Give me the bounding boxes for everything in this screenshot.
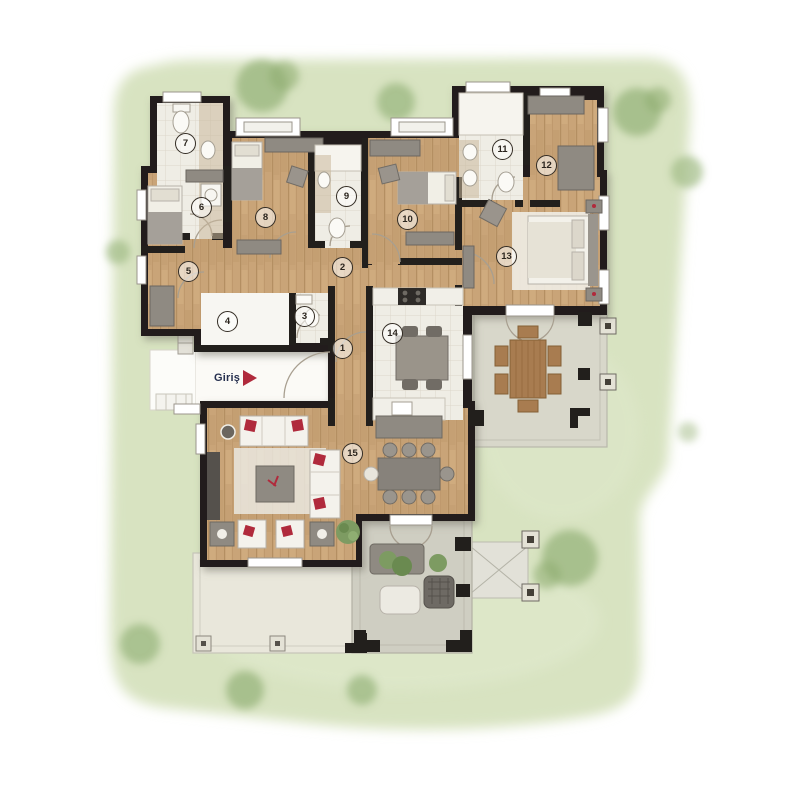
room-badge-3: 3 (294, 306, 315, 327)
room-badge-6: 6 (191, 197, 212, 218)
french-door (390, 515, 432, 525)
chair (421, 490, 435, 504)
window (137, 190, 146, 220)
wardrobe (186, 170, 223, 182)
window (196, 424, 205, 454)
terrace-post (578, 312, 592, 326)
wardrobe (265, 138, 323, 152)
terrace-post (578, 368, 590, 380)
room-badge-7: 7 (175, 133, 196, 154)
sink (463, 170, 477, 186)
chair (548, 374, 561, 394)
room-badge-4: 4 (217, 311, 238, 332)
chair (518, 326, 538, 338)
room-badge-14: 14 (382, 323, 403, 344)
wardrobe (558, 146, 594, 190)
kitchen-table (396, 336, 448, 380)
pillow (244, 419, 257, 432)
chair (402, 490, 416, 504)
window (248, 558, 302, 567)
sink (296, 295, 312, 304)
wardrobe (528, 96, 584, 114)
chair (383, 490, 397, 504)
side-table (221, 425, 235, 439)
sink (463, 144, 477, 160)
wicker-chair (424, 576, 454, 608)
entrance-arrow-icon (243, 370, 257, 386)
chair (383, 443, 397, 457)
chair (402, 379, 418, 390)
patio-bottom-left (193, 553, 363, 653)
chair (518, 400, 538, 412)
pillow (291, 419, 304, 432)
chair (421, 443, 435, 457)
window-sill (174, 404, 200, 414)
toilet (498, 172, 514, 192)
headboard (588, 214, 598, 286)
french-door (506, 305, 554, 316)
room-5-furniture (150, 286, 174, 326)
pergola-post (455, 537, 471, 551)
floor-plan-drawing (0, 0, 800, 800)
room-badge-13: 13 (496, 246, 517, 267)
shower (459, 93, 523, 135)
room-4-floor (201, 293, 289, 345)
chair (402, 443, 416, 457)
dining-table (378, 458, 440, 490)
room-badge-10: 10 (397, 209, 418, 230)
pergola-post (456, 584, 470, 597)
window (463, 335, 472, 379)
tv-unit (207, 452, 220, 520)
wardrobe (370, 140, 420, 156)
chair (495, 374, 508, 394)
pillow (313, 497, 326, 510)
ottoman (380, 586, 420, 614)
room-badge-5: 5 (178, 261, 199, 282)
wardrobe (150, 286, 174, 326)
room-badge-2: 2 (332, 257, 353, 278)
dresser (463, 246, 474, 288)
chair (426, 326, 442, 337)
window (163, 92, 201, 102)
dresser (406, 232, 454, 245)
terrace-post (468, 410, 484, 426)
room-badge-1: 1 (332, 338, 353, 359)
room-badge-12: 12 (536, 155, 557, 176)
chair (426, 379, 442, 390)
toilet (329, 218, 345, 238)
room-badge-8: 8 (255, 207, 276, 228)
sink (201, 141, 215, 159)
chair (364, 467, 378, 481)
chair (548, 346, 561, 366)
entrance-label: Giriş (214, 372, 240, 384)
room-badge-11: 11 (492, 139, 513, 160)
chair (440, 467, 454, 481)
dresser (237, 240, 281, 254)
plant (429, 554, 447, 572)
entrance-label-group: Giriş (214, 370, 257, 386)
floor-plan-page: 1 2 3 4 5 6 7 8 9 10 11 12 13 14 15 Giri… (0, 0, 800, 800)
chair (402, 326, 418, 337)
chair (495, 346, 508, 366)
sideboard (376, 416, 442, 438)
plant (336, 520, 360, 544)
window (137, 256, 146, 284)
stove (398, 288, 426, 305)
kitchen-sink (392, 402, 412, 415)
window (598, 108, 608, 142)
window (466, 82, 510, 92)
room-badge-9: 9 (336, 186, 357, 207)
sink (318, 172, 330, 188)
room-badge-15: 15 (342, 443, 363, 464)
